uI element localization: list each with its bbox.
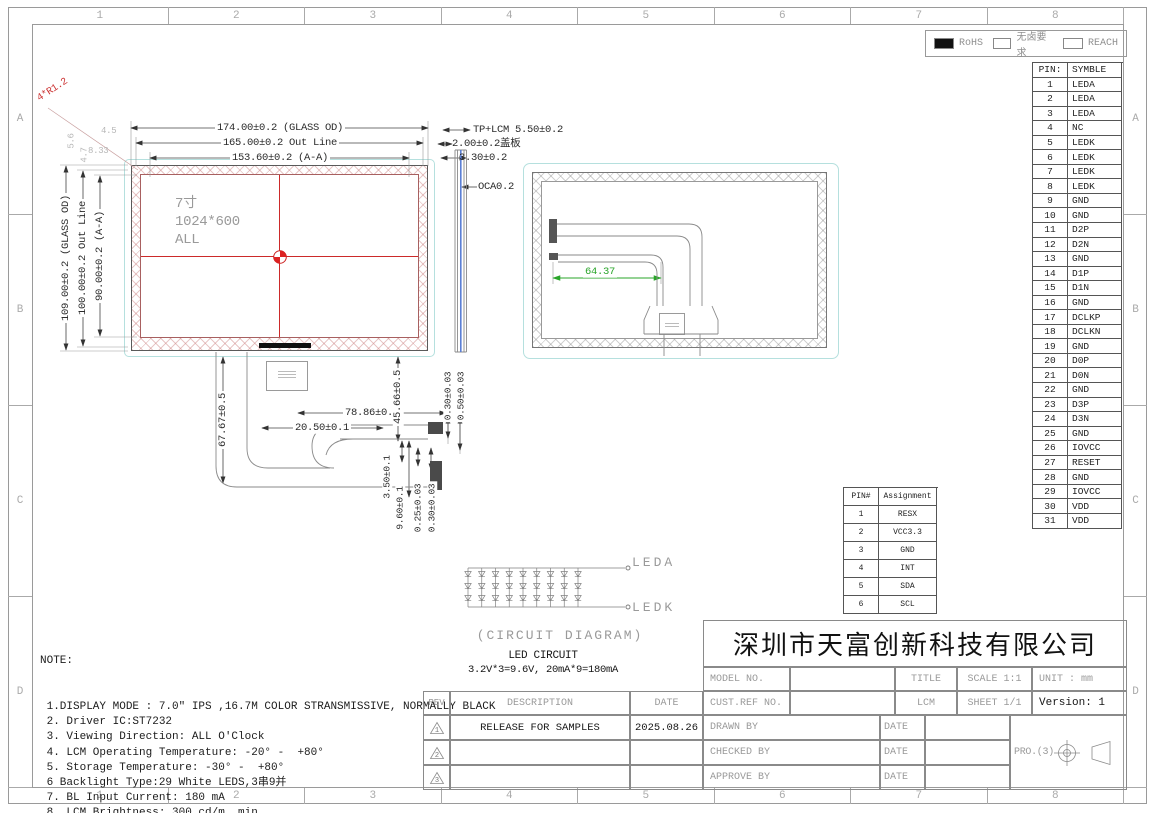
zone-top-1: 1: [32, 7, 169, 24]
svg-text:3: 3: [434, 777, 438, 785]
assignment-row: 6SCL: [844, 596, 938, 614]
pin-table-row: 12D2N: [1033, 238, 1123, 253]
pin-table-row: 8LEDK: [1033, 179, 1123, 194]
model-no-value: [790, 667, 895, 691]
zone-top-2: 2: [169, 7, 306, 24]
dim-050: 0.50±0.03: [456, 370, 466, 423]
pin-table-row: 3LEDA: [1033, 107, 1123, 122]
pin-table-row: 28GND: [1033, 470, 1123, 485]
rohs-label: RoHS: [959, 38, 983, 49]
dim-cover: 2.00±0.2盖板: [452, 139, 520, 150]
pin-table-row: 27RESET: [1033, 456, 1123, 471]
note-line: 7. BL Input Current: 180 mA: [40, 791, 495, 806]
zone-bottom-7: 7: [851, 788, 988, 804]
pin-table-header: PIN:SYMBLE: [1033, 63, 1123, 78]
dim-tp-lcm: TP+LCM 5.50±0.2: [473, 125, 563, 136]
zone-top-5: 5: [578, 7, 715, 24]
dim-oca: OCA0.2: [478, 182, 514, 193]
dim-025: 0.25±0.03: [413, 482, 423, 535]
drawn-date-label: DATE: [880, 715, 925, 740]
dim-960: 9.60±0.1: [395, 484, 405, 531]
title-label: TITLE: [895, 667, 957, 691]
version-label: Version: 1: [1032, 691, 1127, 715]
led-circuit-title: LED CIRCUIT: [508, 651, 577, 662]
dim-glass-od-v: 109.00±0.2 (GLASS OD): [61, 193, 72, 323]
dim-back-6437: 64.37: [583, 267, 617, 278]
reach-swatch: [1063, 38, 1083, 49]
dim-corner-4: 4.7: [81, 147, 90, 162]
dim-outline-h: 165.00±0.2 Out Line: [221, 138, 339, 149]
checked-date-label: DATE: [880, 740, 925, 765]
dim-aa-h: 153.60±0.2 (A-A): [230, 153, 330, 164]
pin-table-row: 2LEDA: [1033, 92, 1123, 107]
sheet-label: SHEET 1/1: [957, 691, 1032, 715]
dim-350: 3.50±0.1: [382, 453, 392, 500]
rev-mark-1: 1: [423, 715, 450, 740]
pin-table-row: 21D0N: [1033, 368, 1123, 383]
svg-text:1: 1: [434, 727, 438, 735]
checked-by-label: CHECKED BY: [703, 740, 880, 765]
pin-table-row: 24D3N: [1033, 412, 1123, 427]
pin-table-row: 15D1N: [1033, 281, 1123, 296]
pin-table-row: 29IOVCC: [1033, 485, 1123, 500]
dim-6767: 67.67±0.5: [218, 391, 229, 449]
pin-symbol-table: PIN:SYMBLE1LEDA2LEDA3LEDA4NC5LEDK6LEDK7L…: [1032, 62, 1123, 529]
circuit-caption: (CIRCUIT DIAGRAM): [477, 629, 644, 642]
pin-assignment-table: PIN#Assignment1RESX2VCC3.33GND4INT5SDA6S…: [843, 487, 938, 614]
date-header: DATE: [630, 691, 703, 715]
rev-row2-date: [630, 740, 703, 765]
fpc-tab: [259, 343, 311, 348]
rohs-swatch: [934, 38, 954, 49]
panel-resolution-label: 1024*600: [175, 215, 240, 229]
assignment-row: 2VCC3.3: [844, 524, 938, 542]
pin-table-row: 19GND: [1033, 339, 1123, 354]
pin-table-row: 4NC: [1033, 121, 1123, 136]
pin-table-row: 22GND: [1033, 383, 1123, 398]
reach-label: REACH: [1088, 38, 1118, 49]
release-description: RELEASE FOR SAMPLES: [450, 715, 630, 740]
zone-top-4: 4: [442, 7, 579, 24]
zone-right-C: C: [1124, 406, 1147, 597]
pin-table-row: 16GND: [1033, 296, 1123, 311]
pin-table-row: 30VDD: [1033, 499, 1123, 514]
pin-table-row: 10GND: [1033, 208, 1123, 223]
compliance-legend: RoHS 无卤要求 REACH: [925, 30, 1127, 57]
dim-2050: 20.50±0.1: [293, 423, 351, 434]
pin-table-row: 20D0P: [1033, 354, 1123, 369]
pin-table-row: 9GND: [1033, 194, 1123, 209]
rev-mark-3: 3: [423, 765, 450, 790]
checked-date-value: [925, 740, 1010, 765]
notes-title: NOTE:: [40, 654, 495, 669]
zone-top-3: 3: [305, 7, 442, 24]
zone-left-C: C: [8, 406, 32, 597]
pin-table-row: 23D3P: [1033, 398, 1123, 413]
rev-row3-desc: [450, 765, 630, 790]
assignment-row: 4INT: [844, 560, 938, 578]
panel-size-label: 7寸: [175, 197, 197, 211]
dim-outline-v: 100.00±0.2 Out Line: [78, 199, 89, 317]
halogen-label: 无卤要求: [1016, 28, 1053, 60]
rev-mark-2: 2: [423, 740, 450, 765]
pin-table-row: 17DCLKP: [1033, 310, 1123, 325]
pin-table-row: 18DCLKN: [1033, 325, 1123, 340]
dim-corner-2: 8.33: [88, 147, 108, 156]
dim-330: 3.30±0.2: [459, 153, 507, 164]
front-view-glass: [131, 165, 428, 351]
assignment-row: 5SDA: [844, 578, 938, 596]
pin-table-row: 5LEDK: [1033, 136, 1123, 151]
dim-4566: 45.66±0.5: [393, 368, 404, 426]
company-name: 深圳市天富创新科技有限公司: [703, 620, 1127, 667]
description-header: DESCRIPTION: [450, 691, 630, 715]
pin-table-row: 1LEDA: [1033, 78, 1123, 93]
pin-table-row: 11D2P: [1033, 223, 1123, 238]
rev-header: REV: [423, 691, 450, 715]
model-no-label: MODEL NO.: [703, 667, 790, 691]
pin-table-row: 7LEDK: [1033, 165, 1123, 180]
pin-table-row: 31VDD: [1033, 514, 1123, 529]
zone-bottom-8: 8: [988, 788, 1125, 804]
lcm-label: LCM: [895, 691, 957, 715]
unit-label: UNIT : mm: [1032, 667, 1127, 691]
ledk-label: LEDK: [632, 601, 675, 614]
drawn-date-value: [925, 715, 1010, 740]
zone-bottom-5: 5: [578, 788, 715, 804]
zone-top-7: 7: [851, 7, 988, 24]
center-mark-icon: [272, 249, 288, 265]
zone-left-B: B: [8, 215, 32, 406]
release-date: 2025.08.26: [630, 715, 703, 740]
assignment-row: 1RESX: [844, 506, 938, 524]
approve-by-label: APPROVE BY: [703, 765, 880, 790]
drawing-sheet: 1122334455667788AABBCCDD RoHS 无卤要求 REACH…: [0, 0, 1155, 813]
dim-glass-od-h: 174.00±0.2 (GLASS OD): [215, 123, 345, 134]
zone-top-8: 8: [988, 7, 1125, 24]
rev-row2-desc: [450, 740, 630, 765]
pin-table-row: 14D1P: [1033, 267, 1123, 282]
leda-label: LEDA: [632, 556, 675, 569]
zone-right-A: A: [1124, 24, 1147, 215]
cust-ref-label: CUST.REF NO.: [703, 691, 790, 715]
approve-date-label: DATE: [880, 765, 925, 790]
cust-ref-value: [790, 691, 895, 715]
pin-table-row: 6LEDK: [1033, 150, 1123, 165]
zone-left-A: A: [8, 24, 32, 215]
approve-date-value: [925, 765, 1010, 790]
zone-right-B: B: [1124, 215, 1147, 406]
scale-label: SCALE 1:1: [957, 667, 1032, 691]
dim-corner-1: 4.5: [101, 127, 116, 136]
pin-table-row: 13GND: [1033, 252, 1123, 267]
assignment-header: PIN#Assignment: [844, 488, 938, 506]
zone-right-D: D: [1124, 597, 1147, 788]
rev-row3-date: [630, 765, 703, 790]
halogen-swatch: [993, 38, 1011, 49]
dim-030a: 0.30±0.03: [443, 370, 453, 423]
zone-top-6: 6: [715, 7, 852, 24]
assignment-row: 3GND: [844, 542, 938, 560]
drawn-by-label: DRAWN BY: [703, 715, 880, 740]
pin-table-row: 25GND: [1033, 427, 1123, 442]
dim-030b: 0.30±0.03: [427, 482, 437, 535]
projection-label: PRO.(3): [1014, 748, 1054, 758]
zone-left-D: D: [8, 597, 32, 788]
note-line: 8. LCM Brightness: 300 cd/m min: [40, 806, 495, 813]
dim-aa-v: 90.00±0.2 (A-A): [95, 209, 106, 303]
pin-table-row: 26IOVCC: [1033, 441, 1123, 456]
svg-text:2: 2: [434, 752, 438, 760]
back-part-label-box: [659, 313, 685, 335]
panel-all-label: ALL: [175, 233, 199, 247]
zone-bottom-6: 6: [715, 788, 852, 804]
dim-corner-3: 5.6: [68, 133, 77, 148]
fpc-part-label-box: [266, 361, 308, 391]
